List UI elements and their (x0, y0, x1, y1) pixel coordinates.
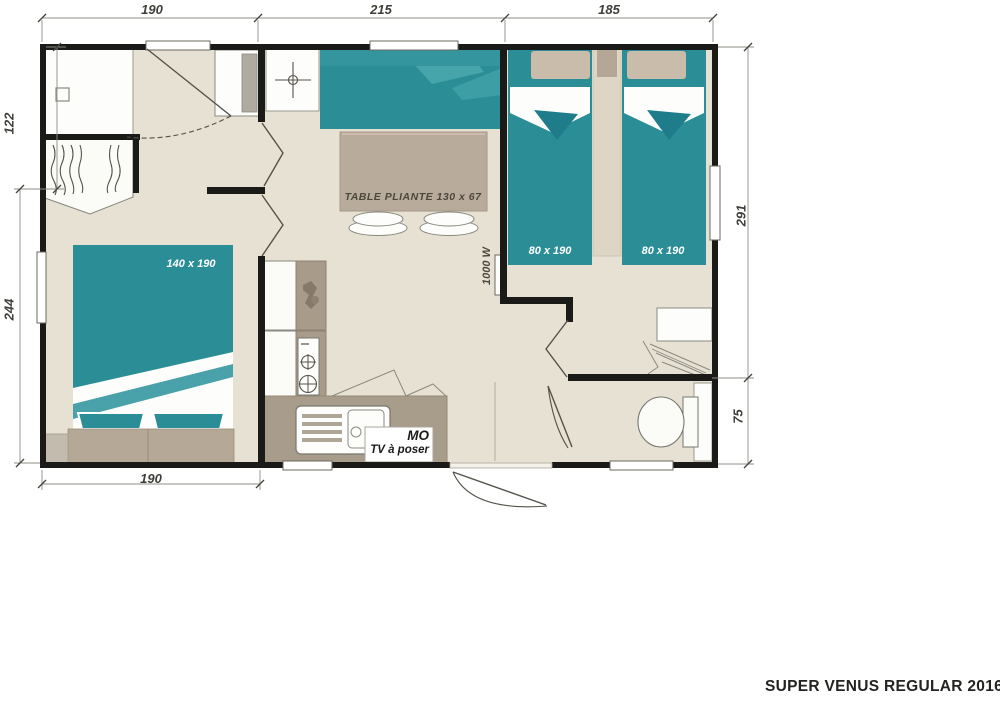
bedside-divider (593, 46, 621, 256)
floorplan-page: 190 215 185 122 244 291 75 190 140 x 190… (0, 0, 1000, 703)
folding-table (340, 132, 487, 211)
floorplan-drawing (0, 0, 1000, 703)
twin-bed-right (622, 46, 706, 265)
stove (298, 338, 319, 395)
sofa (320, 46, 502, 129)
water-heater (266, 48, 319, 111)
tv-unit-box (365, 427, 433, 462)
twin-bed-left (508, 46, 592, 265)
hall-cabinet (215, 50, 262, 116)
